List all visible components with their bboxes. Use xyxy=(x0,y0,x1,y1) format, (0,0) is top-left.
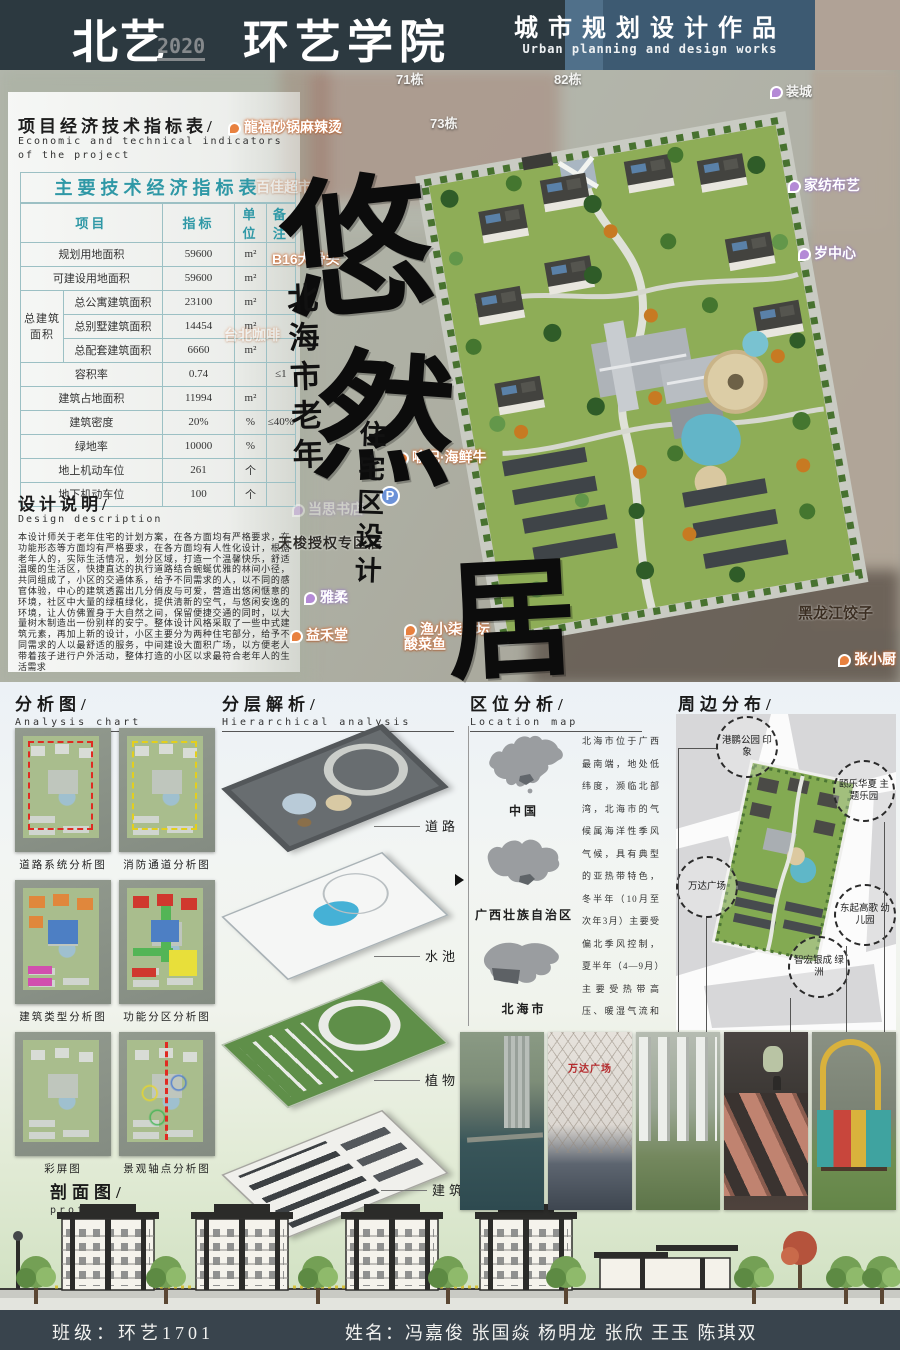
site-masterplan xyxy=(360,70,900,682)
analysis-title-en: Analysis chart xyxy=(15,717,211,728)
reference-photos: 万达广场 xyxy=(460,1032,896,1210)
reference-photo xyxy=(636,1032,720,1210)
table-row: 规划用地面积59600m² xyxy=(21,242,296,266)
table-row: 建筑占地面积11994m² xyxy=(21,386,296,410)
header-tan-panel xyxy=(815,0,900,70)
connector-line xyxy=(706,918,707,1032)
table-caption: 主要技术经济指标表 xyxy=(21,173,296,203)
poster-header: 北艺 2020 环艺学院 城市规划设计作品 Urban planning and… xyxy=(0,0,900,70)
table-row: 可建设用地面积59600m² xyxy=(21,266,296,290)
peripheral-place-label: 智宏银成 绿洲 xyxy=(788,936,850,998)
col-unit: 单位 xyxy=(235,203,267,243)
design-description-body: 本设计师关于老年住宅的计划方案，在各方面均有严格要求，在功能形态等方面均有严格要… xyxy=(18,532,290,672)
reference-photo xyxy=(460,1032,544,1210)
hierarchy-layer-label: 植物 xyxy=(425,1070,459,1089)
location-divider xyxy=(468,726,469,1026)
street-elevation xyxy=(0,1198,900,1310)
china-map-label: 中国 xyxy=(478,802,570,819)
beihai-map-label: 北海市 xyxy=(478,1000,570,1017)
section-location-header: 区位分析/ Location map xyxy=(470,690,642,732)
poster-title-en: Urban planning and design works xyxy=(492,42,808,56)
beihai-map xyxy=(478,934,570,996)
reference-photo xyxy=(812,1032,896,1210)
photo-label: 万达广场 xyxy=(548,1060,632,1075)
indicators-panel: 项目经济技术指标表/ Economic and technical indica… xyxy=(8,92,300,672)
connector-line xyxy=(678,748,679,1032)
hierarchy-stack xyxy=(225,715,453,1235)
china-map xyxy=(478,728,570,800)
peripheral-place-label: 颐乐华夏 主题乐园 xyxy=(833,760,895,822)
analysis-caption: 建筑类型分析图 xyxy=(15,1009,111,1024)
location-description: 北海市位于广西最南端，地处低纬度，濒临北部湾，北海市的气候属海洋性季风气候，具有… xyxy=(582,730,660,1024)
peripheral-place-label: 港鹏公园 印象 xyxy=(716,716,778,778)
low-house xyxy=(594,1245,738,1289)
analysis-caption: 景观轴点分析图 xyxy=(119,1161,215,1176)
analysis-caption: 道路系统分析图 xyxy=(15,857,111,872)
class-label: 班级：环艺1701 xyxy=(52,1319,214,1345)
red-tree xyxy=(781,1231,817,1289)
analysis-plan-image xyxy=(15,880,111,1004)
connector-line xyxy=(790,998,791,1032)
layer-roads xyxy=(221,724,448,852)
layer-plants xyxy=(221,980,448,1108)
hierarchy-layer-label: 水池 xyxy=(425,946,459,965)
col-value: 指标 xyxy=(162,203,234,243)
analysis-caption: 功能分区分析图 xyxy=(119,1009,215,1024)
indicators-title-en1: Economic and technical indicators xyxy=(18,136,283,147)
table-row: 绿地率10000% xyxy=(21,434,296,458)
poster-footer: 班级：环艺1701 姓名：冯嘉俊 张国焱 杨明龙 张欣 王玉 陈琪双 xyxy=(0,1310,900,1350)
indicators-table: 主要技术经济指标表 项目 指标 单位 备注 规划用地面积59600m² 可建设用… xyxy=(20,172,296,507)
guangxi-map-label: 广西壮族自治区 xyxy=(462,906,586,923)
reference-photo xyxy=(724,1032,808,1210)
analysis-thumbnail: 消防通道分析图 xyxy=(119,728,215,872)
analysis-thumbnail: 功能分区分析图 xyxy=(119,880,215,1024)
analysis-thumbnail: 彩屏图 xyxy=(15,1032,111,1176)
indicators-title-en2: of the project xyxy=(18,150,130,161)
analysis-thumbnail: 道路系统分析图 xyxy=(15,728,111,872)
guangxi-map xyxy=(478,832,570,898)
design-description-title: 设计说明/ xyxy=(18,490,111,515)
analysis-title: 分析图/ xyxy=(15,690,211,715)
college-name: 环艺学院 xyxy=(243,6,451,72)
location-arrow-icon xyxy=(455,874,464,886)
table-row: 总建筑 面积总公寓建筑面积23100m² xyxy=(21,290,296,314)
connector-line xyxy=(678,748,716,749)
table-row: 建筑密度20%%≤40% xyxy=(21,410,296,434)
connector-line xyxy=(884,822,885,1032)
analysis-thumbnail: 建筑类型分析图 xyxy=(15,880,111,1024)
analysis-plan-image xyxy=(119,1032,215,1156)
location-title-en: Location map xyxy=(470,717,642,728)
hierarchy-title: 分层解析/ xyxy=(222,690,454,715)
analysis-plan-image xyxy=(15,728,111,852)
design-description-title-en: Design description xyxy=(18,514,162,525)
section-analysis-header: 分析图/ Analysis chart xyxy=(15,690,211,732)
indicators-title: 项目经济技术指标表/ xyxy=(18,112,216,137)
analysis-caption: 消防通道分析图 xyxy=(119,857,215,872)
analysis-grid: 道路系统分析图 消防通道分析图 建筑类型分析图 功能分区分析图 彩屏图 景观轴点… xyxy=(15,728,221,1176)
peripheral-place-label: 东起高歌 幼儿园 xyxy=(834,884,896,946)
col-project: 项目 xyxy=(21,203,163,243)
location-title: 区位分析/ xyxy=(470,690,642,715)
hierarchy-layer-label: 道路 xyxy=(425,816,459,835)
logo-year: 2020 xyxy=(157,34,205,61)
school-logo: 北艺 xyxy=(72,6,168,72)
analysis-caption: 彩屏图 xyxy=(15,1161,111,1176)
connector-line xyxy=(846,946,847,1032)
col-note: 备注 xyxy=(266,203,295,243)
names-label: 姓名：冯嘉俊 张国焱 杨明龙 张欣 王玉 陈琪双 xyxy=(345,1319,758,1345)
table-row: 地上机动车位261个 xyxy=(21,458,296,482)
layer-pools xyxy=(221,852,448,980)
analysis-plan-image xyxy=(119,728,215,852)
table-row: 容积率0.74≤1 xyxy=(21,362,296,386)
reference-photo: 万达广场 xyxy=(548,1032,632,1210)
analysis-plan-image xyxy=(15,1032,111,1156)
peripheral-place-label: 万达广场 xyxy=(676,856,738,918)
peripheral-title: 周边分布/ xyxy=(678,690,896,715)
design-poster: 71栋82栋73栋装城家纺布艺岁中心龍福砂锅麻辣烫百佳超市B16大骨头台北咖啡喻… xyxy=(0,0,900,1350)
analysis-thumbnail: 景观轴点分析图 xyxy=(119,1032,215,1176)
analysis-plan-image xyxy=(119,880,215,1004)
poster-title-cn: 城市规划设计作品 xyxy=(492,8,808,43)
